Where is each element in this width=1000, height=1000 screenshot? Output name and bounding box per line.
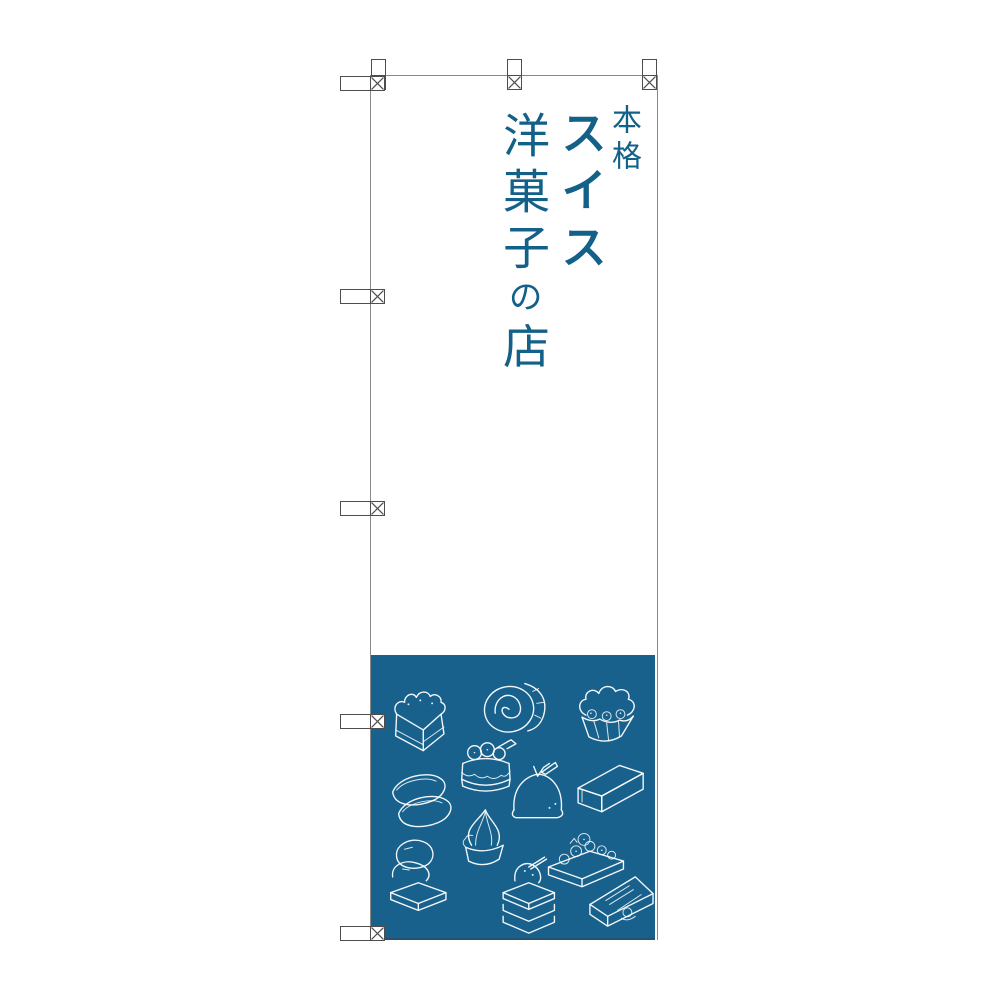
banner-text-particle: の (503, 279, 540, 322)
banner-title: 本格 スイス 洋菓子の店 (497, 104, 638, 464)
banner-text-main: スイス (557, 104, 603, 464)
stitch-x-icon (370, 77, 384, 90)
stitch-x-icon (508, 75, 521, 89)
hem-loop-side-4 (340, 714, 385, 729)
swiss-roll-icon (480, 682, 545, 737)
soft-serve-cup-icon (463, 810, 503, 865)
cupcake-icon (580, 687, 635, 742)
banner-text-secondary: 洋菓子の店 (497, 104, 544, 464)
ladyfinger-pair-icon (393, 775, 451, 827)
hem-loop-side-3 (340, 501, 385, 516)
banner-text-secondary-word: 洋菓子 (495, 111, 547, 279)
hem-loop-side-5 (340, 926, 385, 941)
macaron-burger-icon (391, 840, 446, 910)
strawberry-shortcake-icon (462, 740, 516, 791)
pound-cake-icon (578, 765, 643, 811)
stitch-x-icon (370, 502, 384, 515)
berry-tart-icon (549, 833, 624, 886)
hem-loop-top-right (642, 59, 657, 90)
illustration-panel (371, 655, 655, 940)
dome-cake-icon (512, 762, 562, 817)
banner-text-suffix: 店 (495, 322, 547, 378)
nobori-banner: 本格 スイス 洋菓子の店 (370, 75, 658, 940)
banner-text-prefix: 本格 (608, 104, 638, 464)
hem-loop-side-1 (340, 76, 385, 91)
hem-loop-top-center (507, 59, 522, 90)
product-image: 本格 スイス 洋菓子の店 (0, 0, 1000, 1000)
hem-loop-side-2 (340, 289, 385, 304)
stitch-x-icon (643, 75, 656, 89)
mille-feuille-icon (503, 857, 554, 933)
stitch-x-icon (370, 715, 384, 728)
cake-slice-icon (590, 877, 653, 926)
square-shortcake-icon (395, 692, 445, 751)
stitch-x-icon (370, 290, 384, 303)
pastry-illustrations (371, 655, 655, 938)
stitch-x-icon (370, 927, 384, 940)
